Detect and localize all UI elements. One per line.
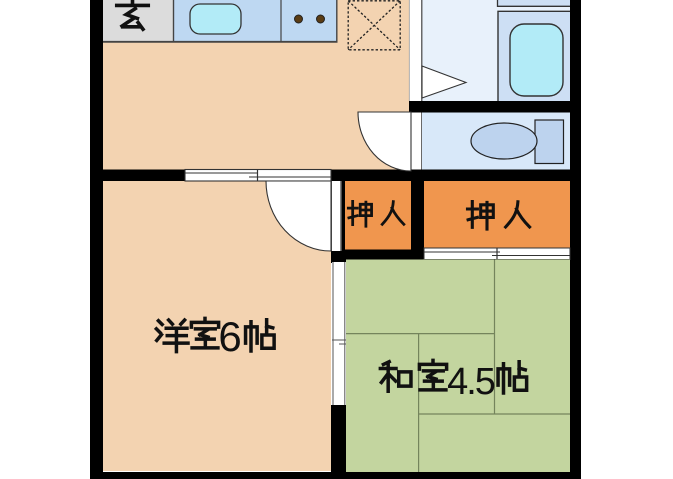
- svg-text:4.5: 4.5: [447, 361, 495, 403]
- svg-text:6: 6: [218, 313, 241, 360]
